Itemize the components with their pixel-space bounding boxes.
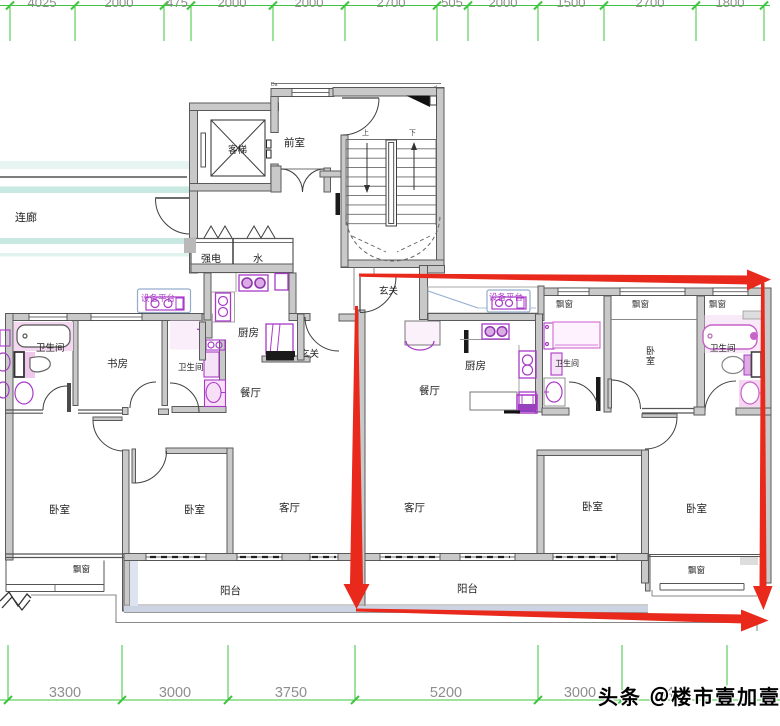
svg-text:3000: 3000 xyxy=(564,685,596,701)
svg-text:2000: 2000 xyxy=(295,0,324,10)
svg-text:Da: Da xyxy=(271,82,278,88)
svg-text:设备平台: 设备平台 xyxy=(141,293,175,303)
svg-text:2000: 2000 xyxy=(489,0,518,10)
svg-text:餐厅: 餐厅 xyxy=(419,384,440,397)
svg-text:强电: 强电 xyxy=(201,252,221,265)
svg-text:餐厅: 餐厅 xyxy=(240,386,261,399)
svg-text:厨房: 厨房 xyxy=(465,359,486,372)
svg-text:水: 水 xyxy=(253,253,263,265)
svg-text:卫生间: 卫生间 xyxy=(555,358,579,368)
svg-text:3300: 3300 xyxy=(49,685,81,701)
svg-text:客厅: 客厅 xyxy=(279,501,300,514)
svg-text:1500: 1500 xyxy=(557,0,586,10)
svg-text:卫生间: 卫生间 xyxy=(36,342,65,354)
svg-text:飘窗: 飘窗 xyxy=(709,299,726,309)
svg-text:2700: 2700 xyxy=(636,0,665,10)
svg-text:3000: 3000 xyxy=(159,685,191,701)
svg-text:室: 室 xyxy=(646,355,655,366)
svg-text:卧室: 卧室 xyxy=(686,502,707,515)
svg-text:卧室: 卧室 xyxy=(582,500,603,513)
svg-text:卫生间: 卫生间 xyxy=(178,362,204,372)
svg-text:1800: 1800 xyxy=(716,0,745,10)
svg-text:5200: 5200 xyxy=(430,685,462,701)
svg-text:下: 下 xyxy=(409,129,416,137)
svg-text:前室: 前室 xyxy=(284,136,305,149)
svg-text:卧: 卧 xyxy=(646,345,655,356)
svg-text:厨房: 厨房 xyxy=(238,326,259,339)
svg-text:3750: 3750 xyxy=(275,685,307,701)
svg-text:设备平台: 设备平台 xyxy=(489,292,523,302)
svg-text:连廊: 连廊 xyxy=(15,210,37,224)
svg-text:2000: 2000 xyxy=(105,0,134,10)
svg-text:阳台: 阳台 xyxy=(457,582,478,595)
svg-text:书房: 书房 xyxy=(107,357,128,370)
svg-text:上: 上 xyxy=(362,128,369,137)
svg-text:卫生间: 卫生间 xyxy=(710,343,736,353)
svg-text:飘窗: 飘窗 xyxy=(688,565,705,575)
svg-text:飘窗: 飘窗 xyxy=(73,564,90,574)
svg-text:卧室: 卧室 xyxy=(49,503,70,516)
svg-text:飘窗: 飘窗 xyxy=(632,299,649,309)
svg-text:505: 505 xyxy=(441,0,463,10)
svg-text:客厅: 客厅 xyxy=(404,501,425,514)
svg-text:4025: 4025 xyxy=(28,0,57,10)
svg-text:2000: 2000 xyxy=(218,0,247,10)
svg-text:阳台: 阳台 xyxy=(220,584,241,597)
svg-text:客梯: 客梯 xyxy=(228,144,248,156)
svg-text:玄关: 玄关 xyxy=(379,285,399,297)
svg-text:卧室: 卧室 xyxy=(184,503,205,516)
svg-text:飘窗: 飘窗 xyxy=(556,299,573,309)
svg-text:2700: 2700 xyxy=(377,0,406,10)
svg-text:475: 475 xyxy=(166,0,188,10)
svg-text:头条 ＠楼市壹加壹: 头条 ＠楼市壹加壹 xyxy=(598,685,779,709)
